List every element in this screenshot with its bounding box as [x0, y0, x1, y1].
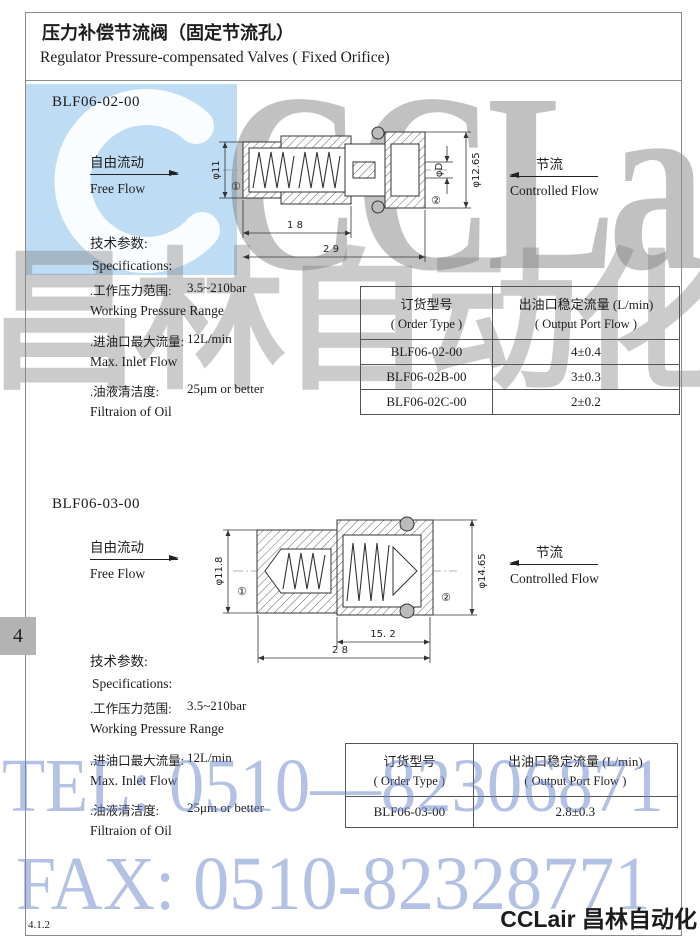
controlled-flow-label-cn: 节流 [536, 158, 599, 172]
free-flow-arrow-icon [90, 174, 178, 175]
spec-value: 12L/min [187, 750, 232, 769]
spec-value: 25μm or better [187, 381, 264, 400]
table-row: BLF06-02-00 4±0.4 [361, 340, 680, 365]
spec-label-cn: .油液清洁度: [90, 800, 187, 819]
section1-controlled-flow: 节流 Controlled Flow [510, 158, 599, 197]
section2-valve-drawing: φ11.8 ① φ14.65 ② 15. 2 2 8 [195, 505, 505, 667]
spec-label-en: Filtraion of Oil [90, 404, 360, 420]
section2-specs-heading-en: Specifications: [92, 676, 172, 692]
spec-working-pressure: .工作压力范围:3.5~210bar Working Pressure Rang… [90, 698, 360, 737]
section2-controlled-flow: 节流 Controlled Flow [510, 546, 599, 585]
controlled-flow-arrow-icon [510, 176, 598, 177]
spec-max-inlet-flow: .进油口最大流量:12L/min Max. Inlet Flow [90, 750, 360, 789]
dim-len-inner: 15. 2 [370, 629, 395, 640]
flow-cell: 3±0.3 [492, 365, 679, 390]
free-flow-label-cn: 自由流动 [90, 541, 178, 555]
header-order-type: 订货型号 ( Order Type ) [346, 744, 474, 797]
section1-model: BLF06-02-00 [52, 94, 140, 111]
title-divider [25, 80, 682, 81]
spec-max-inlet-flow: .进油口最大流量:12L/min Max. Inlet Flow [90, 331, 360, 370]
header-order-type-cn: 订货型号 [365, 294, 488, 313]
flow-cell: 2.8±0.3 [473, 797, 677, 828]
page-title-cn: 压力补偿节流阀（固定节流孔） [42, 19, 294, 45]
datasheet-page: { "page": { "title_cn": "压力补偿节流阀（固定节流孔）"… [0, 0, 700, 950]
spec-value: 12L/min [187, 331, 232, 350]
page-title-en: Regulator Pressure-compensated Valves ( … [40, 49, 390, 67]
spec-label-cn: .工作压力范围: [90, 698, 187, 717]
spec-value: 3.5~210bar [187, 698, 246, 717]
doc-section-number: 4.1.2 [28, 919, 50, 931]
spec-label-cn: .进油口最大流量: [90, 331, 187, 350]
port1-label: ① [237, 585, 247, 598]
spec-label-en: Max. Inlet Flow [90, 773, 360, 789]
free-flow-label-en: Free Flow [90, 182, 178, 196]
section2-specs-heading-cn: 技术参数: [90, 650, 148, 670]
spec-label-en: Max. Inlet Flow [90, 354, 360, 370]
table-row: BLF06-03-00 2.8±0.3 [346, 797, 678, 828]
spec-label-en: Working Pressure Range [90, 303, 360, 319]
controlled-flow-label-en: Controlled Flow [510, 572, 599, 586]
flow-cell: 4±0.4 [492, 340, 679, 365]
spec-label-en: Working Pressure Range [90, 721, 360, 737]
controlled-flow-label-cn: 节流 [536, 546, 599, 560]
controlled-flow-arrow-icon [510, 564, 598, 565]
spec-oil-filtration: .油液清洁度:25μm or better Filtraion of Oil [90, 381, 360, 420]
port1-label: ① [231, 180, 241, 193]
spec-working-pressure: .工作压力范围:3.5~210bar Working Pressure Rang… [90, 280, 360, 319]
dim-dia-left: φ11 [211, 160, 222, 179]
spec-label-en: Filtraion of Oil [90, 823, 360, 839]
section1-specs-heading-en: Specifications: [92, 258, 172, 274]
table-header-row: 订货型号 ( Order Type ) 出油口稳定流量 (L/min) ( Ou… [346, 744, 678, 797]
free-flow-arrow-icon [90, 559, 178, 560]
dim-dia-left: φ11.8 [214, 557, 225, 586]
dim-dia-right: φ12.65 [471, 152, 482, 187]
header-output-flow-cn: 出油口稳定流量 (L/min) [497, 294, 675, 313]
section2-model: BLF06-03-00 [52, 496, 140, 513]
section1-specs-heading-cn: 技术参数: [90, 232, 148, 252]
port2-label: ② [431, 194, 441, 207]
spec-value: 3.5~210bar [187, 280, 246, 299]
spec-value: 25μm or better [187, 800, 264, 819]
section1-valve-drawing: φ11 ① 1 8 2 9 φD φ12.65 ② [195, 112, 505, 270]
section2-free-flow: 自由流动 Free Flow [90, 541, 178, 580]
dim-len-total: 2 9 [323, 244, 339, 255]
header-order-type-en: ( Order Type ) [365, 317, 488, 332]
header-output-flow-cn: 出油口稳定流量 (L/min) [478, 751, 673, 770]
dim-len-inner: 1 8 [287, 220, 303, 231]
header-output-flow-en: ( Output Port Flow ) [497, 317, 675, 332]
table-row: BLF06-02B-00 3±0.3 [361, 365, 680, 390]
section1-order-table: 订货型号 ( Order Type ) 出油口稳定流量 (L/min) ( Ou… [360, 286, 680, 415]
dim-dia-orifice: φD [434, 163, 445, 178]
free-flow-label-en: Free Flow [90, 567, 178, 581]
section1-free-flow: 自由流动 Free Flow [90, 156, 178, 195]
dim-len-total: 2 8 [332, 645, 348, 656]
table-header-row: 订货型号 ( Order Type ) 出油口稳定流量 (L/min) ( Ou… [361, 287, 680, 340]
spec-label-cn: .工作压力范围: [90, 280, 187, 299]
order-type-cell: BLF06-02C-00 [361, 390, 493, 415]
order-type-cell: BLF06-02-00 [361, 340, 493, 365]
header-output-flow-en: ( Output Port Flow ) [478, 774, 673, 789]
header-output-flow: 出油口稳定流量 (L/min) ( Output Port Flow ) [492, 287, 679, 340]
spec-oil-filtration: .油液清洁度:25μm or better Filtraion of Oil [90, 800, 360, 839]
free-flow-label-cn: 自由流动 [90, 156, 178, 170]
footer-brand: CCLair 昌林自动化 [500, 900, 697, 934]
port2-label: ② [441, 591, 451, 604]
controlled-flow-label-en: Controlled Flow [510, 184, 599, 198]
header-order-type-en: ( Order Type ) [350, 774, 469, 789]
spec-label-cn: .进油口最大流量: [90, 750, 187, 769]
section2-order-table: 订货型号 ( Order Type ) 出油口稳定流量 (L/min) ( Ou… [345, 743, 678, 828]
dim-dia-right: φ14.65 [477, 553, 488, 588]
order-type-cell: BLF06-03-00 [346, 797, 474, 828]
header-order-type-cn: 订货型号 [350, 751, 469, 770]
header-output-flow: 出油口稳定流量 (L/min) ( Output Port Flow ) [473, 744, 677, 797]
page-number-tab: 4 [0, 617, 36, 655]
flow-cell: 2±0.2 [492, 390, 679, 415]
spec-label-cn: .油液清洁度: [90, 381, 187, 400]
header-order-type: 订货型号 ( Order Type ) [361, 287, 493, 340]
table-row: BLF06-02C-00 2±0.2 [361, 390, 680, 415]
order-type-cell: BLF06-02B-00 [361, 365, 493, 390]
